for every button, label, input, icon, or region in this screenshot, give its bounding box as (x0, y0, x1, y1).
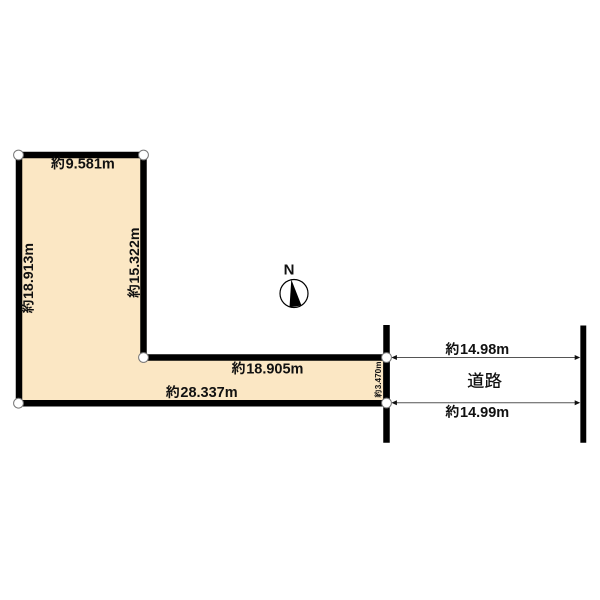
svg-text:28.337m: 28.337m (180, 385, 237, 401)
svg-text:9.581m: 9.581m (66, 157, 115, 173)
svg-text:18.905m: 18.905m (246, 361, 303, 377)
svg-text:3.470m: 3.470m (374, 362, 383, 390)
svg-text:14.98m: 14.98m (460, 342, 509, 358)
svg-text:18.913m: 18.913m (21, 243, 37, 299)
svg-text:14.99m: 14.99m (460, 405, 509, 421)
svg-text:N: N (284, 262, 295, 279)
svg-text:15.322m: 15.322m (127, 228, 143, 284)
